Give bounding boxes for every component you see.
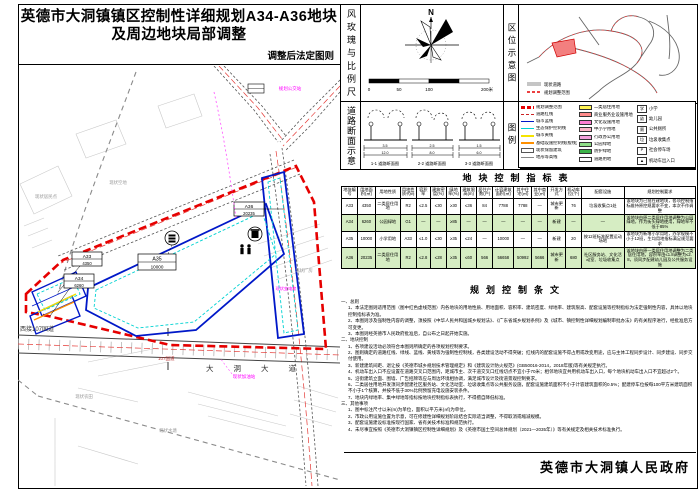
- legend-item: 厕公共厕所: [637, 126, 693, 134]
- provision-line: 2、图则确定的道路红线、绿线、蓝线、黄线等为强制性控制线，各类建设活动不得突破；…: [341, 350, 695, 363]
- plot-label-a35: A35 10000: [138, 245, 176, 270]
- legend-item: 文化设施用地: [579, 120, 635, 125]
- school-icon: [165, 231, 179, 245]
- svg-text:1.5: 1.5: [477, 144, 482, 148]
- table-cell: 规划控制要求: [624, 187, 695, 199]
- table-cell: R2: [400, 248, 416, 269]
- legend-item: 生态保护控制线: [521, 126, 577, 131]
- provisions-section: 规划控制条文 一、总则1、本法定图则适用范围（图中红色虚线范围）内各地块的用地性…: [341, 283, 695, 433]
- orangeline-swatch: [521, 142, 534, 144]
- table-cell: 城市更新: [548, 248, 566, 269]
- indicators-section: 地块控制指标表 地块编号用地面积(㎡)用地性质用地性质代码容积率建筑密度(%)绿…: [341, 171, 696, 269]
- svg-text:12.0: 12.0: [382, 151, 389, 155]
- legend-item: 中小学用地: [579, 127, 635, 132]
- svg-text:A36: A36: [245, 204, 254, 210]
- table-cell: 垃圾收集点1处: [582, 198, 625, 214]
- table-cell: ≤2.5: [416, 198, 430, 214]
- table-cell: 4350: [358, 198, 376, 214]
- svg-text:100: 100: [425, 87, 433, 92]
- provision-line: 4、未尽事宜按照《英德市大洞镇镇区控制性详细规划》及《英德市国土空间总体规划（2…: [341, 427, 695, 433]
- table-cell: —: [566, 215, 582, 231]
- table-cell: —: [532, 215, 548, 231]
- plot-label-a36: A36 20235: [234, 202, 284, 216]
- legend-item: 行政办公用地: [579, 135, 635, 140]
- legend-item: 商业服务业设施用地: [579, 112, 635, 117]
- table-cell: 按12班标准配置运动场地: [582, 231, 625, 247]
- svg-text:A34: A34: [75, 276, 84, 282]
- table-row: A334350二类居住用地R2≤2.5≤30≥30≤368477887788—城…: [342, 198, 696, 214]
- table-cell: 公园绿地: [375, 215, 400, 231]
- table-cell: 新建: [548, 215, 566, 231]
- table-cell: 5666: [532, 248, 548, 269]
- svg-text:现状居民点: 现状居民点: [35, 193, 58, 200]
- legend-lines-column: 规划调整范围 道路红线 城市蓝线 生态保护控制线 城市黄线 基础设施控制线(橙线…: [521, 105, 577, 164]
- page-title-line2: 及周边地块局部调整: [18, 26, 340, 44]
- location-mini-legend: 现状道路 规划调整范围: [527, 81, 570, 96]
- table-cell: —: [461, 215, 477, 231]
- table-cell: 20235: [358, 248, 376, 269]
- trash-legend-icon: 垃: [637, 136, 647, 144]
- parking-legend-icon: P: [637, 147, 647, 155]
- legend-item: 基础设施控制线(橙线): [521, 141, 577, 146]
- table-cell: 小学用地: [375, 231, 400, 247]
- svg-text:20235: 20235: [243, 211, 255, 216]
- location-map-panel: 现状道路 规划调整范围: [518, 4, 698, 104]
- table-cell: ≤24: [461, 231, 477, 247]
- svg-text:现状道路: 现状道路: [544, 81, 562, 88]
- svg-text:50: 50: [396, 87, 402, 92]
- building-swatch: [521, 148, 534, 153]
- windrose-strip-label: 风玫瑰与比例尺: [345, 9, 358, 100]
- table-cell: 10000: [358, 231, 376, 247]
- location-map-drawing: 现状道路 规划调整范围: [519, 5, 697, 103]
- table-cell: ≥85: [446, 215, 460, 231]
- table-header-row: 地块编号用地面积(㎡)用地性质用地性质代码容积率建筑密度(%)绿地率(%)建筑限…: [342, 187, 696, 199]
- provision-line: 2、本图则涉及强制性内容的调整，须按照《中华人民共和国城乡规划法》、《广东省城乡…: [341, 318, 695, 331]
- legend-item: 现状保留建筑: [521, 148, 577, 153]
- table-cell: 其中商业(㎡): [532, 187, 548, 199]
- blueline-swatch: [521, 121, 534, 123]
- indicators-table: 地块编号用地面积(㎡)用地性质用地性质代码容积率建筑密度(%)绿地率(%)建筑限…: [341, 186, 696, 269]
- table-cell: —: [532, 231, 548, 247]
- table-cell: —: [532, 198, 548, 214]
- bus-stop-label: 规划公交站: [279, 85, 302, 92]
- main-map: A33 4350 A34 6260 A35 10000 A36 20235: [18, 66, 340, 487]
- signature-rule: [344, 452, 696, 453]
- table-cell: 566: [477, 248, 493, 269]
- svg-text:8.0: 8.0: [430, 151, 435, 155]
- svg-text:现状水塘: 现状水塘: [159, 427, 177, 434]
- table-cell: ≤28: [430, 248, 446, 269]
- landuse-swatch: [579, 157, 592, 162]
- landuse-swatch: [579, 149, 592, 154]
- table-cell: ≤60: [461, 248, 477, 269]
- yellowline-swatch: [521, 135, 534, 137]
- table-cell: 该地块为已批在建地块，各项控制指标维持原控规要求不变，本次不作调整: [624, 198, 695, 214]
- signature: 英德市大洞镇人民政府: [340, 457, 690, 476]
- boundary-swatch: [521, 106, 534, 109]
- table-cell: 56658: [493, 248, 514, 269]
- title-rule: [18, 64, 340, 65]
- legend-item: 二类居住用地: [579, 105, 635, 110]
- table-cell: —: [582, 215, 625, 231]
- table-cell: 居住户数(户): [477, 187, 493, 199]
- road-sections-panel: 3.5 12.0 1-1 道路断面图 2.5 8.0 2-2 道路断面图: [360, 101, 505, 170]
- table-cell: —: [477, 215, 493, 231]
- legend-item: 防护绿地: [579, 149, 635, 154]
- table-cell: 680: [566, 248, 582, 269]
- table-cell: 76: [566, 198, 582, 214]
- table-title: 地块控制指标表: [341, 171, 696, 184]
- highway-label: 107国道: [158, 355, 175, 362]
- table-cell: —: [514, 215, 532, 231]
- svg-text:A33: A33: [83, 254, 92, 260]
- landuse-swatch: [579, 105, 592, 110]
- table-cell: 50992: [514, 248, 532, 269]
- table-cell: —: [477, 231, 493, 247]
- svg-text:10000: 10000: [151, 264, 164, 269]
- table-cell: 84: [477, 198, 493, 214]
- table-cell: ≤36: [461, 198, 477, 214]
- table-cell: 7788: [493, 198, 514, 214]
- redline-swatch: [521, 114, 534, 115]
- svg-text:2.5: 2.5: [430, 144, 435, 148]
- provision-line: 4、机动车出入口不应设置在道路交叉口范围内，距城市主、次干道交叉口红线切点不宜小…: [341, 369, 695, 375]
- map-road-centerlines: [61, 66, 340, 486]
- table-cell: 用地性质代码: [400, 187, 416, 199]
- table-cell: A33: [342, 198, 358, 214]
- location-strip-label: 区位示意图: [506, 23, 518, 86]
- table-cell: 6260: [358, 215, 376, 231]
- section-caption: 3-3 道路断面图: [465, 160, 493, 167]
- north-label: N: [428, 8, 434, 17]
- landuse-swatch: [579, 127, 592, 132]
- table-cell: 7788: [514, 198, 532, 214]
- table-cell: A36: [342, 248, 358, 269]
- table-cell: 计容建筑面积(㎡): [493, 187, 514, 199]
- legend-item: 幼幼儿园: [637, 115, 693, 123]
- west-road-label: 西接107国道: [20, 325, 54, 333]
- substation-label: 现状变电房: [276, 285, 297, 292]
- cyanline-swatch: [521, 128, 534, 130]
- table-cell: 20: [566, 231, 582, 247]
- gas-station-label: 现状加油站: [233, 373, 256, 380]
- table-cell: 用地面积(㎡): [358, 187, 376, 199]
- table-cell: ≥35: [446, 231, 460, 247]
- windrose-panel: N 0 50 100 200米: [360, 4, 505, 104]
- svg-text:200米: 200米: [481, 86, 494, 93]
- svg-text:A35: A35: [152, 257, 161, 263]
- legend-item: 垃垃圾收集点: [637, 136, 693, 144]
- table-cell: 绿地率(%): [446, 187, 460, 199]
- subtitle: 调整后法定图则: [18, 48, 334, 62]
- section-caption: 2-2 道路断面图: [418, 160, 446, 167]
- table-cell: 二类居住用地: [375, 248, 400, 269]
- svg-text:6.0: 6.0: [477, 151, 482, 155]
- table-cell: A34: [342, 215, 358, 231]
- svg-text:6260: 6260: [74, 283, 84, 288]
- table-cell: 其中住宅(㎡): [514, 187, 532, 199]
- table-cell: ≤30: [430, 231, 446, 247]
- legend-strip-label: 图例: [506, 123, 518, 148]
- svg-text:4350: 4350: [82, 261, 92, 266]
- legend-item: 道路用地: [579, 157, 635, 162]
- title-block: 英德市大洞镇镇区控制性详细规划A34-A36地块 及周边地块局部调整: [18, 8, 340, 44]
- table-cell: 建筑密度(%): [430, 187, 446, 199]
- legend-icons-column: 学小学 幼幼儿园 厕公共厕所 垃垃圾收集点 P社会停车场 ▲机动车出入口: [637, 105, 693, 164]
- landuse-swatch: [579, 112, 592, 117]
- contour-swatch: [521, 157, 534, 158]
- table-cell: A35: [342, 231, 358, 247]
- table-cell: 10000: [493, 231, 514, 247]
- table-cell: 城市更新: [548, 198, 566, 214]
- table-cell: ≥30: [446, 198, 460, 214]
- main-road-name: 大洞大道: [206, 363, 316, 373]
- table-cell: 容积率: [416, 187, 430, 199]
- table-cell: ≤1.0: [416, 231, 430, 247]
- table-cell: ≤2.8: [416, 248, 430, 269]
- provisions-title: 规划控制条文: [341, 283, 695, 296]
- table-cell: 该地块为新增小学用地，办学规模不小于12班，生均用地指标满足规范要求: [624, 231, 695, 247]
- legend-item: 学小学: [637, 105, 693, 113]
- toilet-icon: [240, 244, 250, 254]
- table-row: A346260公园绿地G1——≥85—————新建——该地块由原二类居住用地调整…: [342, 215, 696, 231]
- legend-item: 地形等高线: [521, 155, 577, 160]
- table-cell: 开发方式: [548, 187, 566, 199]
- toilet-legend-icon: 厕: [637, 126, 647, 134]
- legend-item: 规划调整范围: [521, 105, 577, 110]
- trash-icon: [248, 227, 262, 241]
- table-cell: 机动车位(个): [566, 187, 582, 199]
- table-cell: 用地性质: [375, 187, 400, 199]
- table-cell: 该地块由原一类居住用地调整为二类居住用地，容积率由≤1.8调整为≤2.8，须同步…: [624, 248, 695, 269]
- table-cell: 社区服务站、文化活动室、垃圾收集点: [582, 248, 625, 269]
- road-sections-drawing: 3.5 12.0 1-1 道路断面图 2.5 8.0 2-2 道路断面图: [361, 102, 504, 169]
- landuse-swatch: [579, 135, 592, 140]
- table-cell: ≥35: [446, 248, 460, 269]
- road-section-strip-label: 道路断面示意: [345, 106, 358, 166]
- kindergarten-legend-icon: 幼: [637, 115, 647, 123]
- table-row: A3620235二类居住用地R2≤2.8≤28≥35≤6056656658509…: [342, 248, 696, 269]
- svg-text:现状厂房: 现状厂房: [295, 267, 313, 274]
- legend-fills-column: 二类居住用地 商业服务业设施用地 文化设施用地 中小学用地 行政办公用地 公园绿…: [579, 105, 635, 164]
- table-cell: 二类居住用地: [375, 198, 400, 214]
- legend-item: 城市蓝线: [521, 119, 577, 124]
- legend-panel: 规划调整范围 道路红线 城市蓝线 生态保护控制线 城市黄线 基础设施控制线(橙线…: [518, 101, 696, 168]
- location-highlight-plot: [552, 39, 576, 57]
- landuse-swatch: [579, 142, 592, 147]
- table-cell: 新建: [548, 231, 566, 247]
- school-legend-icon: 学: [637, 105, 647, 113]
- svg-text:规划调整范围: 规划调整范围: [544, 89, 570, 96]
- landuse-swatch: [579, 120, 592, 125]
- svg-text:3.5: 3.5: [383, 144, 388, 148]
- windrose-drawing: N 0 50 100 200米: [361, 5, 504, 103]
- provision-line: 1、本法定图则适用范围（图中红色虚线范围）内各地块的用地性质、用地面积、容积率、…: [341, 305, 695, 318]
- scale-bar: 0 50 100 200米: [368, 79, 494, 93]
- table-row: A3510000小学用地A33≤1.0≤30≥35≤24—10000——新建20…: [342, 231, 696, 247]
- page-title-line1: 英德市大洞镇镇区控制性详细规划A34-A36地块: [18, 8, 340, 26]
- table-cell: —: [493, 215, 514, 231]
- entrance-legend-icon: ▲: [637, 157, 647, 165]
- legend-item: ▲机动车出入口: [637, 157, 693, 165]
- section-caption: 1-1 道路断面图: [371, 160, 399, 167]
- legend-item: 城市黄线: [521, 133, 577, 138]
- table-cell: 地块编号: [342, 187, 358, 199]
- svg-text:现状农田: 现状农田: [75, 393, 93, 400]
- legend-item: 公园绿地: [579, 142, 635, 147]
- table-cell: R2: [400, 198, 416, 214]
- table-cell: A33: [400, 231, 416, 247]
- table-cell: —: [514, 231, 532, 247]
- legend-item: P社会停车场: [637, 147, 693, 155]
- legend-item: 道路红线: [521, 112, 577, 117]
- table-cell: —: [430, 215, 446, 231]
- svg-text:现状空地: 现状空地: [109, 179, 127, 186]
- provisions-body: 一、总则1、本法定图则适用范围（图中红色虚线范围）内各地块的用地性质、用地面积、…: [341, 299, 695, 433]
- table-cell: 配套设施: [582, 187, 625, 199]
- table-cell: ≤30: [430, 198, 446, 214]
- table-cell: 该地块由原二类居住用地调整为公园绿地，作为街头绿地使用，绿地率不低于85%: [624, 215, 695, 231]
- table-cell: 建筑限高(m): [461, 187, 477, 199]
- table-cell: G1: [400, 215, 416, 231]
- table-cell: —: [416, 215, 430, 231]
- provision-line: 6、二类居住用地开发须同步配建社区服务站、文化活动室、垃圾收集点等公共服务设施，…: [341, 382, 695, 395]
- svg-text:0: 0: [368, 87, 371, 92]
